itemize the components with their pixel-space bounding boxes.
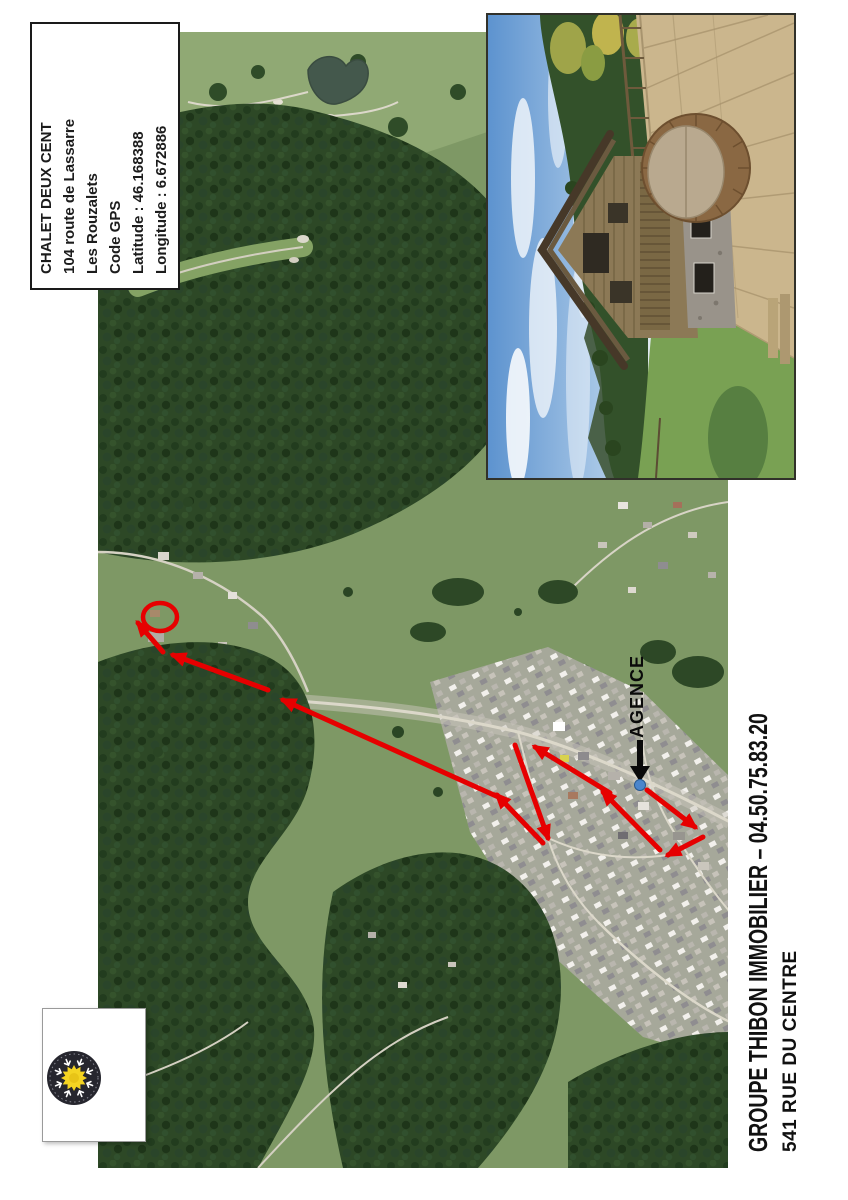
gps-code-label: Code GPS [104, 24, 127, 274]
les-gets-logo [42, 1008, 146, 1142]
agence-label: AGENCE [627, 655, 647, 738]
agence-arrow-shaft [637, 740, 643, 768]
gps-latitude: Latitude : 46.168388 [127, 24, 150, 274]
chalet-name: CHALET DEUX CENT [35, 24, 58, 274]
gps-longitude: Longitude : 6.672886 [150, 24, 173, 274]
agency-name-phone: GROUPE THIBON IMMOBILIER – 04.50.75.83.2… [741, 713, 775, 1152]
hot-tub [642, 114, 750, 222]
chalet-street: 104 route de Lassarre [58, 24, 81, 274]
agency-address-line: 541 RUE DU CENTRE [778, 928, 804, 1152]
chalet-photo [486, 13, 796, 480]
les-gets-sun-icon [45, 1049, 103, 1107]
chalet-info-box: CHALET DEUX CENT 104 route de Lassarre L… [30, 22, 180, 290]
agency-contact-line: GROUPE THIBON IMMOBILIER – 04.50.75.83.2… [741, 660, 775, 1152]
agency-location-dot [635, 780, 646, 791]
agency-address: 541 RUE DU CENTRE [778, 928, 804, 1152]
chalet-locality: Les Rouzalets [81, 24, 104, 274]
direction-sheet-page: AGENCE CHALET DEUX CENT 104 route de Las… [0, 0, 848, 1200]
